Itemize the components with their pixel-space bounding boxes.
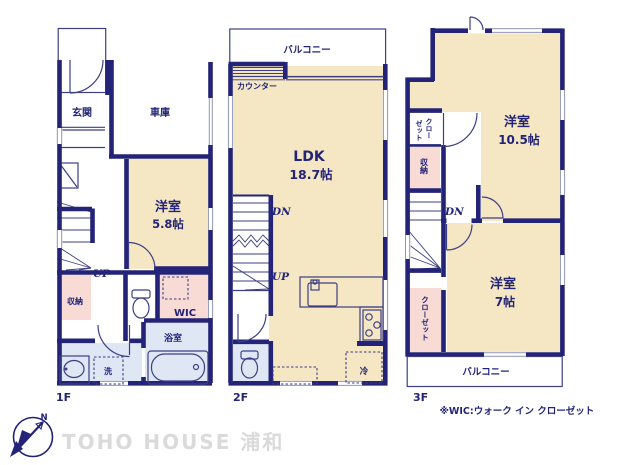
label-1f-garage: 車庫 [150,106,170,119]
label-3f-dn: DN [444,206,464,218]
label-3f-balcony: バルコニー [462,366,509,378]
label-1f-wic: WIC [174,308,196,319]
label-2f-counter: カウンター [237,81,277,91]
label-3f-room1-name: 洋室 [504,114,530,130]
label-1f-entrance: 玄関 [72,106,92,119]
entrance-porch [58,29,105,93]
label-1f-bathroom: 浴室 [164,332,182,344]
label-3f-closet-bottom: クローゼット [420,296,429,342]
entrance-door-arc [70,60,103,93]
label-3f-closet-top-col1: クロー [425,118,433,139]
stairs-3f [408,202,441,269]
label-1f-up: UP [93,268,111,280]
label-3f-closet-top-col2: ゼット [415,119,423,141]
label-2f-fridge: 冷 [360,366,369,377]
wic-footnote: ※WIC:ウォーク イン クローゼット [440,405,595,417]
compass-north-label: N [40,413,47,423]
floor1-plan: 玄関 車庫 洋室 5.8帖 UP 収納 WIC 浴室 洗 1F [56,29,214,405]
understairs-diagonal [60,164,77,187]
compass-icon: N [10,413,53,457]
label-1f-storage: 収納 [67,296,83,306]
label-2f-ldk: LDK [293,149,326,165]
label-1f-room-name: 洋室 [155,199,181,215]
door-3f-room1 [444,113,478,147]
watermark-text: TOHO HOUSE 浦和 [62,430,284,454]
label-2f-dn: DN [271,206,291,218]
label-2f-floor: 2F [233,391,248,404]
label-1f-laundry: 洗 [104,366,112,376]
label-1f-room-size: 5.8帖 [152,217,184,231]
floorplan-canvas: 玄関 車庫 洋室 5.8帖 UP 収納 WIC 浴室 洗 1F [0,0,620,465]
genkan-step-lines [59,127,105,147]
label-3f-storage: 収納 [419,157,429,175]
room-2f-toilet [233,344,269,383]
label-2f-ldk-size: 18.7帖 [289,167,333,182]
label-3f-room1-size: 10.5帖 [498,132,540,147]
label-2f-balcony: バルコニー [283,44,330,56]
door-3f-top-small [468,17,485,33]
room-3f-western-10_5-top [435,33,561,112]
label-2f-up: UP [272,271,290,283]
label-3f-room2-name: 洋室 [490,276,516,292]
floorplan-svg: 玄関 車庫 洋室 5.8帖 UP 収納 WIC 浴室 洗 1F [0,0,620,465]
room-3f-western-10_5-alcove [410,82,442,111]
floor3-plan: 洋室 10.5帖 クロー ゼット 収納 DN 洋室 7帖 クローゼット バルコニ… [405,17,566,404]
label-3f-room2-size: 7帖 [495,294,515,309]
floor2-plan: バルコニー カウンター LDK 18.7帖 DN UP 冷 2F [228,29,389,404]
label-1f-floor: 1F [56,391,71,404]
label-3f-floor: 3F [413,391,428,404]
toilet-1f [132,290,150,318]
